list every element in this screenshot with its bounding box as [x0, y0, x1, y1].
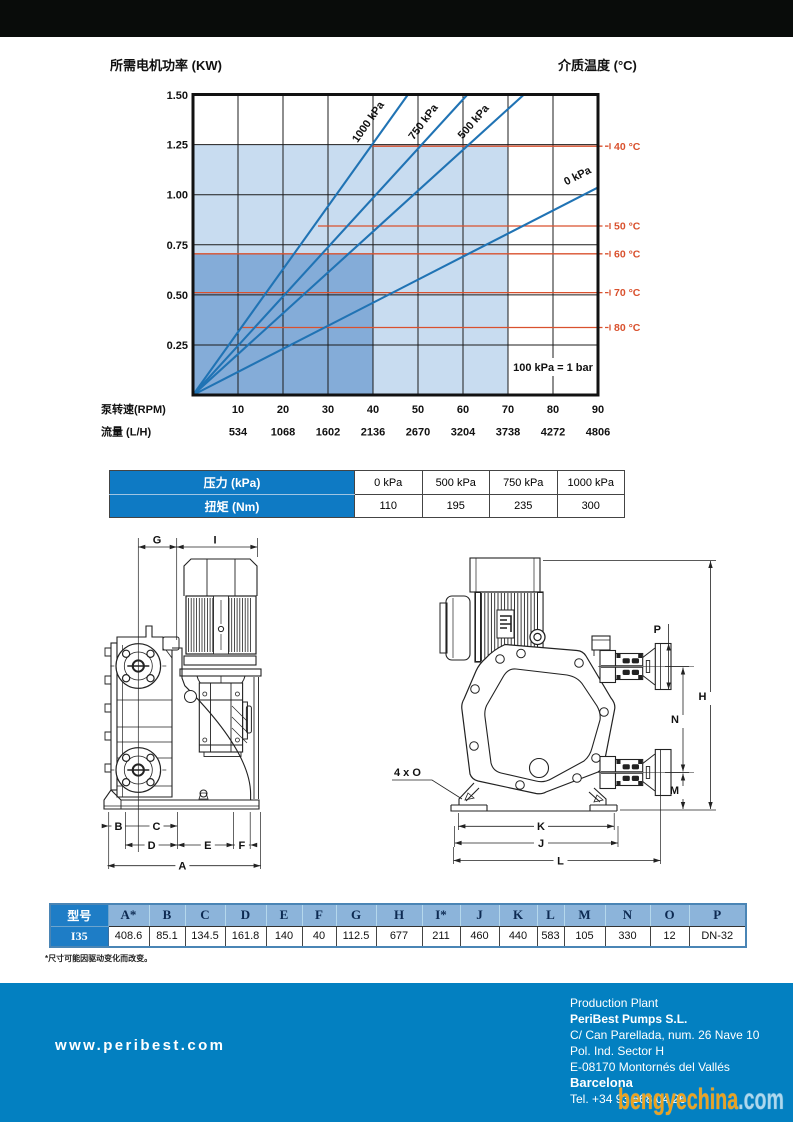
svg-text:P: P	[654, 624, 661, 636]
svg-text:50 °C: 50 °C	[614, 221, 641, 233]
svg-text:100 kPa = 1 bar: 100 kPa = 1 bar	[513, 362, 594, 374]
svg-text:流量 (L/H): 流量 (L/H)	[101, 425, 151, 439]
svg-text:2670: 2670	[406, 427, 430, 439]
svg-text:50: 50	[412, 404, 424, 416]
svg-text:H: H	[699, 691, 707, 703]
svg-text:I: I	[213, 535, 216, 547]
svg-text:D: D	[148, 840, 156, 852]
svg-text:介质温度 (°C): 介质温度 (°C)	[557, 58, 637, 73]
svg-text:1000 kPa: 1000 kPa	[350, 99, 387, 145]
svg-text:60 °C: 60 °C	[614, 248, 641, 260]
svg-text:2136: 2136	[361, 427, 385, 439]
svg-text:70 °C: 70 °C	[614, 287, 641, 299]
svg-text:20: 20	[277, 404, 289, 416]
svg-text:3738: 3738	[496, 427, 520, 439]
svg-text:80 °C: 80 °C	[614, 322, 641, 334]
svg-text:4806: 4806	[586, 427, 610, 439]
svg-text:1.00: 1.00	[167, 190, 188, 202]
svg-text:N: N	[671, 714, 679, 726]
svg-text:30: 30	[322, 404, 334, 416]
svg-text:4272: 4272	[541, 427, 565, 439]
svg-text:500 kPa: 500 kPa	[456, 102, 493, 141]
svg-text:3204: 3204	[451, 427, 476, 439]
svg-text:90: 90	[592, 404, 604, 416]
svg-text:0.50: 0.50	[167, 290, 188, 302]
svg-text:E: E	[204, 840, 211, 852]
svg-text:4 x O: 4 x O	[394, 767, 421, 779]
svg-text:A: A	[178, 861, 186, 873]
svg-text:10: 10	[232, 404, 244, 416]
svg-text:泵转速(RPM): 泵转速(RPM)	[101, 402, 166, 416]
svg-text:0.25: 0.25	[167, 340, 188, 352]
svg-text:K: K	[537, 821, 545, 833]
svg-text:所需电机功率 (KW): 所需电机功率 (KW)	[110, 58, 222, 73]
svg-text:0 kPa: 0 kPa	[562, 164, 594, 188]
svg-text:B: B	[115, 821, 123, 833]
svg-text:1.50: 1.50	[167, 90, 188, 102]
svg-text:750 kPa: 750 kPa	[406, 102, 441, 143]
svg-text:J: J	[538, 838, 544, 850]
svg-text:60: 60	[457, 404, 469, 416]
svg-text:F: F	[239, 840, 246, 852]
svg-text:1068: 1068	[271, 427, 295, 439]
svg-text:L: L	[557, 855, 564, 867]
svg-text:M: M	[670, 785, 679, 797]
svg-text:G: G	[153, 535, 162, 547]
svg-text:40 °C: 40 °C	[614, 141, 641, 153]
svg-text:40: 40	[367, 404, 379, 416]
svg-text:0.75: 0.75	[167, 240, 188, 252]
svg-text:534: 534	[229, 427, 248, 439]
svg-text:70: 70	[502, 404, 514, 416]
svg-text:80: 80	[547, 404, 559, 416]
svg-text:C: C	[153, 821, 161, 833]
svg-text:1.25: 1.25	[167, 140, 188, 152]
svg-text:1602: 1602	[316, 427, 340, 439]
